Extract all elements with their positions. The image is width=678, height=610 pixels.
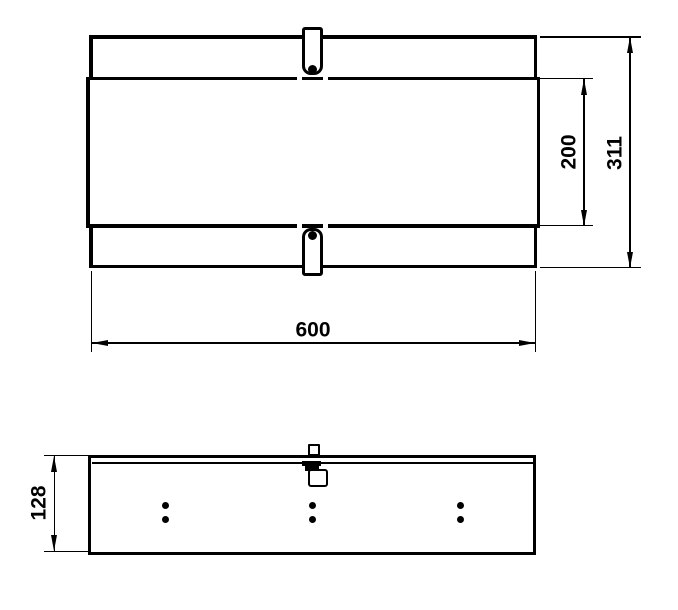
bottom-clip-line-gap-left — [297, 223, 302, 228]
fastener-dot — [457, 502, 464, 509]
latch-hook-loop — [308, 469, 328, 487]
dim-inner-arrow-top — [581, 79, 587, 95]
dim-width-arrow-left — [92, 340, 108, 346]
latch-tab-top — [308, 444, 320, 456]
dim-inner-height-label: 200 — [559, 134, 580, 169]
dim-overall-arrow-bottom — [627, 252, 633, 268]
side-view: 128 — [0, 0, 678, 610]
fastener-dot — [162, 516, 169, 523]
dim-width-arrow-right — [519, 340, 535, 346]
fastener-dot — [309, 516, 316, 523]
dim-depth-label: 128 — [29, 485, 50, 520]
dim-overall-arrow-top — [627, 37, 633, 53]
technical-drawing: 600 311 200 — [0, 0, 678, 610]
top-clip-line-gap-right — [323, 76, 328, 81]
fastener-dot — [309, 502, 316, 509]
bottom-clip-line-gap-right — [323, 223, 328, 228]
dim-inner-arrow-bottom — [581, 210, 587, 226]
dim-width-label: 600 — [295, 320, 330, 341]
dim-depth-arrow-bottom — [51, 535, 57, 551]
dim-depth-arrow-top — [51, 456, 57, 472]
top-clip-pin-dot — [308, 65, 317, 74]
dim-depth-extension-bottom — [44, 551, 89, 552]
top-clip-line-gap-left — [297, 76, 302, 81]
fastener-dot — [162, 502, 169, 509]
fastener-dot — [457, 516, 464, 523]
dim-overall-height-label: 311 — [605, 136, 626, 170]
bottom-clip-pin-dot — [308, 231, 317, 240]
